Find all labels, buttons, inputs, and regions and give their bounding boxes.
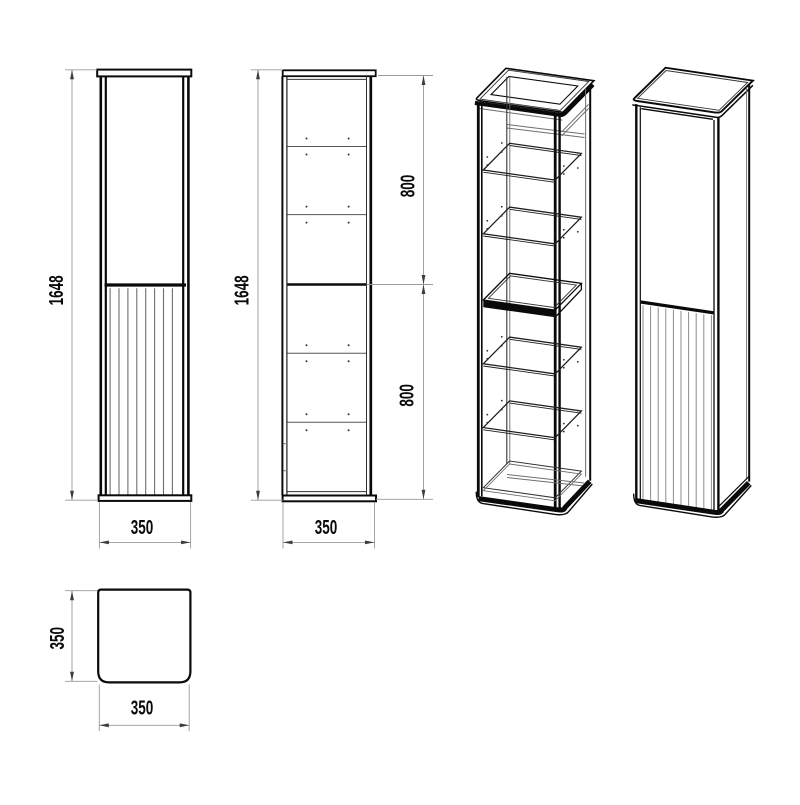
- svg-text:800: 800: [397, 175, 419, 198]
- svg-text:1648: 1648: [46, 275, 68, 305]
- svg-text:350: 350: [47, 627, 69, 650]
- svg-text:800: 800: [397, 384, 419, 407]
- svg-text:350: 350: [315, 517, 338, 539]
- svg-text:350: 350: [131, 697, 154, 719]
- svg-text:1648: 1648: [231, 275, 253, 305]
- svg-text:350: 350: [131, 517, 154, 539]
